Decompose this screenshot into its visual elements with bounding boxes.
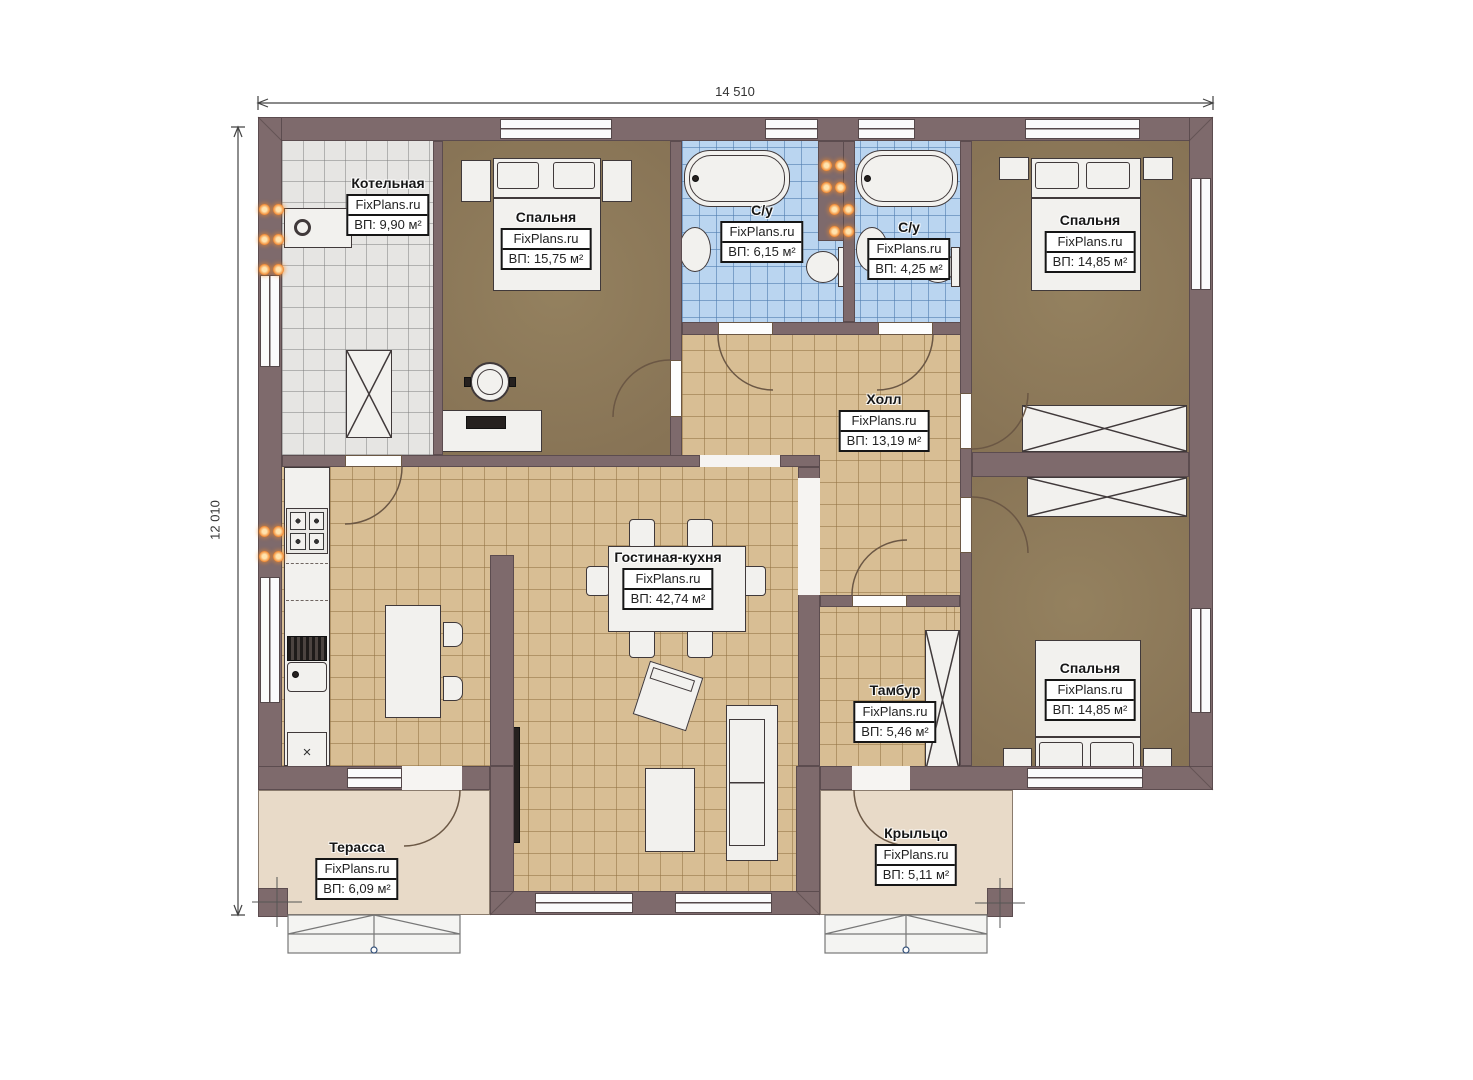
- porch-steps: [825, 915, 987, 953]
- door-leaf-vestibule: [852, 595, 907, 607]
- room-area: ВП: 14,85 м²: [1047, 699, 1134, 719]
- opening-living-hall: [700, 455, 780, 467]
- watermark: FixPlans.ru: [869, 240, 948, 258]
- window-bay-left: [535, 893, 633, 913]
- burner-icon: [290, 512, 306, 530]
- room-name: Крыльцо: [875, 825, 957, 841]
- window-top-bedroom2: [1025, 119, 1140, 139]
- floor-plan-canvas: ×: [0, 0, 1473, 1080]
- tv-on-desk: [466, 416, 506, 429]
- room-name: Тамбур: [853, 682, 936, 698]
- window-right-bedroom3: [1191, 608, 1211, 713]
- room-name: Холл: [839, 391, 930, 407]
- dimension-width-label: 14 510: [715, 84, 755, 99]
- room-info-box: FixPlans.ru ВП: 6,15 м²: [720, 221, 803, 263]
- pot-handle: [464, 377, 471, 387]
- faucet-icon: [864, 175, 871, 182]
- sink-1: [679, 227, 711, 272]
- dimension-height-label: 12 010: [208, 500, 223, 540]
- towel-radiator-icon: [829, 226, 854, 237]
- wall-hall-living-stub: [780, 455, 820, 467]
- room-area: ВП: 5,46 м²: [855, 721, 934, 741]
- room-area: ВП: 14,85 м²: [1047, 251, 1134, 271]
- room-area: ВП: 42,74 м²: [625, 588, 712, 608]
- burner-icon: [309, 512, 325, 530]
- boiler-unit-icon: [294, 219, 311, 236]
- room-info-box: FixPlans.ru ВП: 5,11 м²: [875, 844, 957, 886]
- porch-corner-post: [987, 888, 1013, 917]
- room-label-bedroom-3: Спальня FixPlans.ru ВП: 14,85 м²: [1045, 660, 1136, 721]
- door-leaf-bath1: [718, 322, 773, 335]
- coffee-table: [645, 768, 695, 852]
- kitchen-island: [385, 605, 441, 718]
- bed-blanket-line: [1032, 197, 1140, 199]
- room-area: ВП: 15,75 м²: [503, 248, 590, 268]
- stove-burners: [286, 508, 328, 554]
- room-label-vestibule: Тамбур FixPlans.ru ВП: 5,46 м²: [853, 682, 936, 743]
- towel-radiator-icon: [821, 160, 846, 171]
- wall-bedroom2-bedroom3: [972, 452, 1189, 477]
- opening-terrace-door: [402, 766, 462, 790]
- bar-stool: [443, 676, 463, 701]
- watermark: FixPlans.ru: [1047, 681, 1134, 699]
- watermark: FixPlans.ru: [841, 412, 928, 430]
- door-leaf-bedroom3: [960, 497, 972, 553]
- wardrobe-bedroom-2: [1022, 405, 1187, 452]
- room-area: ВП: 4,25 м²: [869, 258, 948, 278]
- bar-stool: [443, 622, 463, 647]
- watermark: FixPlans.ru: [348, 196, 427, 214]
- pot-inner: [477, 369, 503, 395]
- watermark: FixPlans.ru: [625, 570, 712, 588]
- room-info-box: FixPlans.ru ВП: 13,19 м²: [839, 410, 930, 452]
- dining-chair: [687, 628, 713, 658]
- boiler-equipment: [346, 350, 392, 438]
- toilet-2-tank: [951, 247, 960, 287]
- room-name: С/у: [720, 202, 803, 218]
- terrace-steps: [288, 915, 460, 953]
- room-area: ВП: 6,09 м²: [317, 878, 396, 898]
- pillow: [1086, 162, 1130, 189]
- window-left-boiler: [260, 275, 280, 367]
- pillow: [553, 162, 595, 189]
- bathtub-2-inner: [861, 155, 953, 202]
- radiator-icon: [259, 204, 284, 215]
- sofa: [726, 705, 778, 861]
- room-label-terrace: Терасса FixPlans.ru ВП: 6,09 м²: [315, 839, 398, 900]
- room-info-box: FixPlans.ru ВП: 42,74 м²: [623, 568, 714, 610]
- room-info-box: FixPlans.ru ВП: 6,09 м²: [315, 858, 398, 900]
- room-name: Котельная: [346, 175, 429, 191]
- window-bottom-bedroom3: [1027, 768, 1143, 788]
- room-area: ВП: 9,90 м²: [348, 214, 427, 234]
- room-label-hall: Холл FixPlans.ru ВП: 13,19 м²: [839, 391, 930, 452]
- burner-icon: [309, 533, 325, 551]
- room-info-box: FixPlans.ru ВП: 9,90 м²: [346, 194, 429, 236]
- watermark: FixPlans.ru: [503, 230, 590, 248]
- terrace-corner-post: [258, 888, 288, 917]
- opening-living-corridor: [798, 478, 820, 595]
- room-label-boiler: Котельная FixPlans.ru ВП: 9,90 м²: [346, 175, 429, 236]
- pot-handle: [509, 377, 516, 387]
- window-bottom-kitchen: [347, 768, 402, 788]
- pillow: [1090, 742, 1134, 769]
- window-left-kitchen: [260, 577, 280, 703]
- pillow: [1039, 742, 1083, 769]
- room-info-box: FixPlans.ru ВП: 4,25 м²: [867, 238, 950, 280]
- room-name: С/у: [867, 219, 950, 235]
- towel-radiator-icon: [829, 204, 854, 215]
- dining-chair: [687, 519, 713, 549]
- radiator-icon: [259, 234, 284, 245]
- bathtub-1-inner: [689, 155, 785, 202]
- room-label-living-kitchen: Гостиная-кухня FixPlans.ru ВП: 42,74 м²: [614, 549, 721, 610]
- dishwasher-x-mark: ×: [303, 744, 312, 761]
- wall-bedroom1-bath: [670, 141, 682, 467]
- room-name: Спальня: [501, 209, 592, 225]
- nightstand: [602, 160, 632, 202]
- room-label-bath-2: С/у FixPlans.ru ВП: 4,25 м²: [867, 219, 950, 280]
- dining-chair: [629, 519, 655, 549]
- toilet-1-bowl: [806, 251, 840, 283]
- wall-boiler-bedroom1: [433, 141, 443, 455]
- room-info-box: FixPlans.ru ВП: 14,85 м²: [1045, 231, 1136, 273]
- oven-appliance: [287, 636, 327, 661]
- room-info-box: FixPlans.ru ВП: 15,75 м²: [501, 228, 592, 270]
- watermark: FixPlans.ru: [855, 703, 934, 721]
- room-info-box: FixPlans.ru ВП: 5,46 м²: [853, 701, 936, 743]
- wardrobe-bedroom-3: [1027, 477, 1187, 517]
- nightstand: [999, 157, 1029, 180]
- burner-icon: [290, 533, 306, 551]
- nightstand: [461, 160, 491, 202]
- counter-divider: [286, 600, 328, 601]
- window-top-bath2: [858, 119, 915, 139]
- radiator-icon: [259, 526, 284, 537]
- radiator-icon: [259, 264, 284, 275]
- room-area: ВП: 13,19 м²: [841, 430, 928, 450]
- door-leaf-bedroom1: [670, 360, 682, 417]
- watermark: FixPlans.ru: [1047, 233, 1134, 251]
- window-bay-right: [675, 893, 772, 913]
- room-label-bedroom-1: Спальня FixPlans.ru ВП: 15,75 м²: [501, 209, 592, 270]
- opening-porch-door: [852, 766, 910, 790]
- window-top-bath1: [765, 119, 818, 139]
- room-area: ВП: 5,11 м²: [877, 864, 955, 884]
- faucet-icon: [692, 175, 699, 182]
- room-name: Гостиная-кухня: [614, 549, 721, 565]
- room-info-box: FixPlans.ru ВП: 14,85 м²: [1045, 679, 1136, 721]
- door-leaf-bedroom2: [960, 393, 972, 449]
- pillow: [497, 162, 539, 189]
- door-leaf-bath2: [878, 322, 933, 335]
- bed-blanket-line: [494, 197, 600, 199]
- watermark: FixPlans.ru: [317, 860, 396, 878]
- wall-kitchen-living: [490, 555, 514, 766]
- room-label-bath-1: С/у FixPlans.ru ВП: 6,15 м²: [720, 202, 803, 263]
- room-name: Терасса: [315, 839, 398, 855]
- towel-radiator-icon: [821, 182, 846, 193]
- nightstand: [1143, 157, 1173, 180]
- door-leaf-boiler: [345, 455, 402, 467]
- radiator-icon: [259, 551, 284, 562]
- dining-chair: [586, 566, 610, 596]
- watermark: FixPlans.ru: [877, 846, 955, 864]
- room-area: ВП: 6,15 м²: [722, 241, 801, 261]
- faucet-icon: [292, 671, 299, 678]
- window-right-bedroom2: [1191, 178, 1211, 290]
- pillow: [1035, 162, 1079, 189]
- room-name: Спальня: [1045, 660, 1136, 676]
- room-label-bedroom-2: Спальня FixPlans.ru ВП: 14,85 м²: [1045, 212, 1136, 273]
- dining-chair: [629, 628, 655, 658]
- window-top-bedroom1: [500, 119, 612, 139]
- wall-hall-bedrooms-right: [960, 141, 972, 766]
- sofa-cushions: [729, 719, 765, 846]
- watermark: FixPlans.ru: [722, 223, 801, 241]
- room-name: Спальня: [1045, 212, 1136, 228]
- counter-divider: [286, 563, 328, 564]
- bed-blanket-line: [1036, 736, 1140, 738]
- room-label-porch: Крыльцо FixPlans.ru ВП: 5,11 м²: [875, 825, 957, 886]
